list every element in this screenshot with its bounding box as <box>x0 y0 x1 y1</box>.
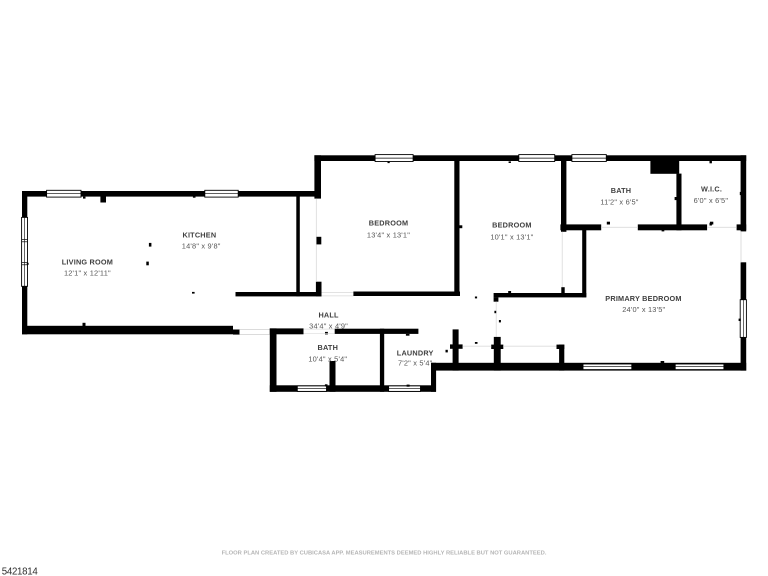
svg-text:34'4" x 4'9": 34'4" x 4'9" <box>309 321 348 330</box>
svg-text:LAUNDRY: LAUNDRY <box>397 348 434 357</box>
svg-text:10'1" x 13'1": 10'1" x 13'1" <box>490 233 533 242</box>
svg-text:BEDROOM: BEDROOM <box>369 219 409 228</box>
svg-text:W.I.C.: W.I.C. <box>701 184 722 193</box>
svg-text:5421814: 5421814 <box>2 566 39 576</box>
svg-text:10'4" x 5'4": 10'4" x 5'4" <box>308 355 347 364</box>
svg-text:PRIMARY BEDROOM: PRIMARY BEDROOM <box>605 294 681 303</box>
svg-text:FLOOR PLAN CREATED BY CUBICASA: FLOOR PLAN CREATED BY CUBICASA APP. MEAS… <box>222 550 547 556</box>
svg-text:HALL: HALL <box>318 310 339 319</box>
svg-text:LIVING ROOM: LIVING ROOM <box>62 257 113 266</box>
svg-text:BATH: BATH <box>611 186 632 195</box>
svg-text:24'0" x 13'5": 24'0" x 13'5" <box>622 305 665 314</box>
svg-text:KITCHEN: KITCHEN <box>182 230 216 239</box>
svg-text:BATH: BATH <box>318 343 339 352</box>
svg-text:13'4" x 13'1": 13'4" x 13'1" <box>367 231 410 240</box>
svg-text:7'2" x 5'4": 7'2" x 5'4" <box>398 358 433 367</box>
svg-text:11'2" x 6'5": 11'2" x 6'5" <box>600 198 638 207</box>
svg-text:BEDROOM: BEDROOM <box>492 221 532 230</box>
svg-text:14'8" x 9'8": 14'8" x 9'8" <box>182 242 221 251</box>
svg-text:6'0" x 6'5": 6'0" x 6'5" <box>694 196 729 205</box>
svg-text:12'1" x 12'11": 12'1" x 12'11" <box>64 269 111 278</box>
